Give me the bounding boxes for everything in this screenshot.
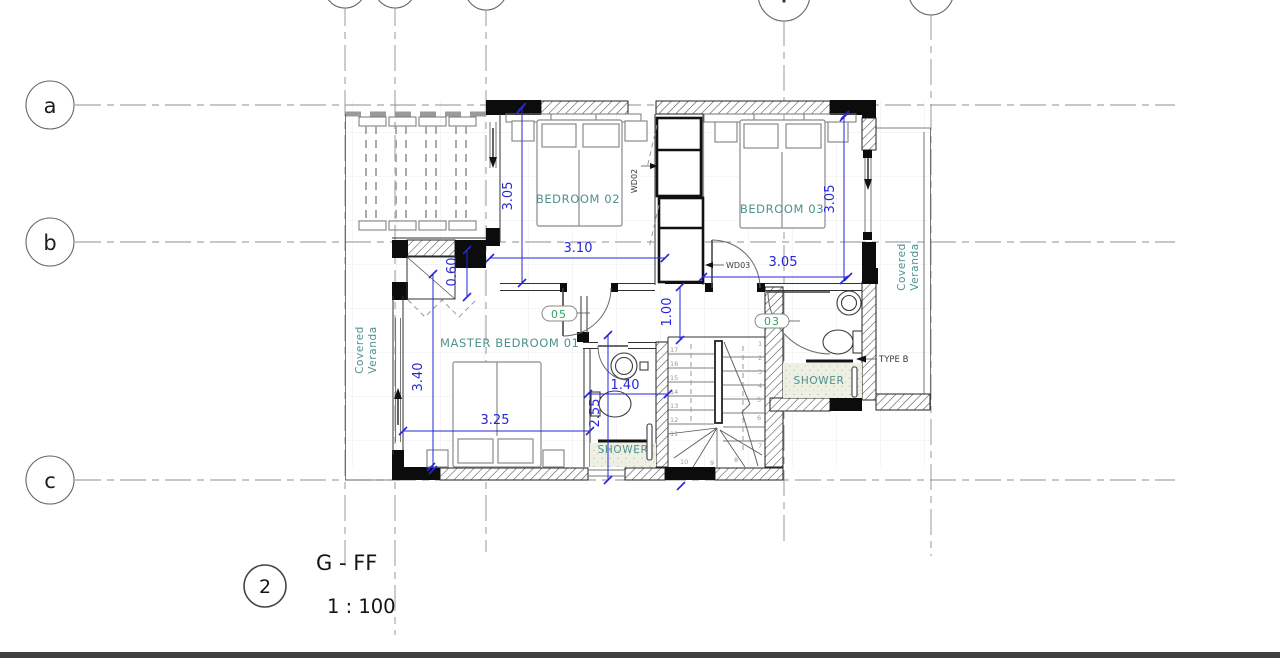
dim-bedroom02-width: 3.10 [564, 241, 593, 256]
svg-text:Covered: Covered [896, 243, 908, 291]
dim-bedroom03-width: 3.05 [769, 255, 798, 270]
dim-ensuite-width: 1.40 [611, 378, 640, 393]
svg-text:16: 16 [670, 360, 678, 368]
dim-ensuite-depth: 2.55 [588, 399, 603, 428]
dim-hall-width: 1.00 [660, 298, 675, 327]
window-bottom-wall [588, 470, 625, 476]
svg-text:10: 10 [680, 458, 688, 466]
room-label-shower-ensuite: SHOWER [598, 444, 649, 456]
dim-bedroom02-height: 3.05 [501, 182, 516, 211]
stair-center-stringer [715, 341, 722, 423]
svg-text:Covered: Covered [354, 326, 366, 374]
svg-text:17: 17 [670, 346, 678, 354]
view-title-scale: 1 : 100 [327, 595, 396, 618]
view-title-name: G - FF [316, 551, 377, 575]
dim-master-height: 3.40 [411, 363, 426, 392]
room-label-bedroom03: BEDROOM 03 [740, 202, 824, 216]
svg-text:13: 13 [670, 402, 678, 410]
svg-text:5: 5 [757, 396, 761, 404]
floor-plan-drawing: a b c [0, 0, 1280, 658]
room-label-bedroom02: BEDROOM 02 [536, 192, 620, 206]
grid-bubble-top-1 [323, 0, 367, 8]
svg-text:6: 6 [757, 414, 761, 422]
svg-text:15: 15 [670, 374, 678, 382]
view-number: 2 [259, 576, 271, 598]
svg-text:9: 9 [710, 459, 714, 467]
grid-bubble-top-3 [464, 0, 508, 10]
svg-text:14: 14 [670, 388, 678, 396]
tag-wd03: WD03 [726, 261, 750, 270]
grid-label-b: b [43, 231, 56, 255]
svg-text:Veranda: Veranda [909, 243, 921, 291]
tag-door-05: 05 [551, 308, 567, 321]
svg-text:Veranda: Veranda [367, 326, 379, 374]
tag-door-03: 03 [764, 315, 780, 328]
grid-bubble-top-4 [758, 0, 810, 21]
wardrobe-wd03 [659, 198, 703, 282]
svg-text:12: 12 [670, 416, 678, 424]
room-label-veranda-left: Covered Veranda [354, 326, 379, 374]
svg-text:7: 7 [758, 442, 762, 450]
view-title-block: 2 G - FF 1 : 100 [244, 551, 396, 618]
room-label-shower-right: SHOWER [794, 375, 845, 387]
dim-closet-depth: 0.60 [445, 258, 460, 287]
grid-label-c: c [44, 469, 56, 493]
svg-text:3: 3 [758, 368, 762, 376]
svg-text:1: 1 [758, 340, 762, 348]
toilet-right-shower [853, 331, 862, 353]
bottom-bar [0, 652, 1280, 658]
grid-bubble-top-2 [373, 0, 417, 8]
svg-text:4: 4 [758, 382, 762, 390]
svg-text:8: 8 [734, 456, 738, 464]
dim-bedroom03-height: 3.05 [823, 185, 838, 214]
grid-bubble-top-5 [908, 0, 954, 15]
tag-type-b: TYPE B [878, 355, 909, 365]
dim-master-width: 3.25 [481, 413, 510, 428]
room-label-veranda-right: Covered Veranda [896, 243, 921, 291]
shower-door-handle-right [852, 367, 857, 397]
window-bedroom02-left [489, 122, 497, 168]
svg-text:2: 2 [758, 354, 762, 362]
tag-wd02: WD02 [630, 169, 639, 193]
room-label-master: MASTER BEDROOM 01 [440, 336, 580, 350]
wardrobe-wd02 [657, 118, 701, 196]
svg-text:11: 11 [670, 430, 678, 438]
grid-label-a: a [44, 94, 57, 118]
